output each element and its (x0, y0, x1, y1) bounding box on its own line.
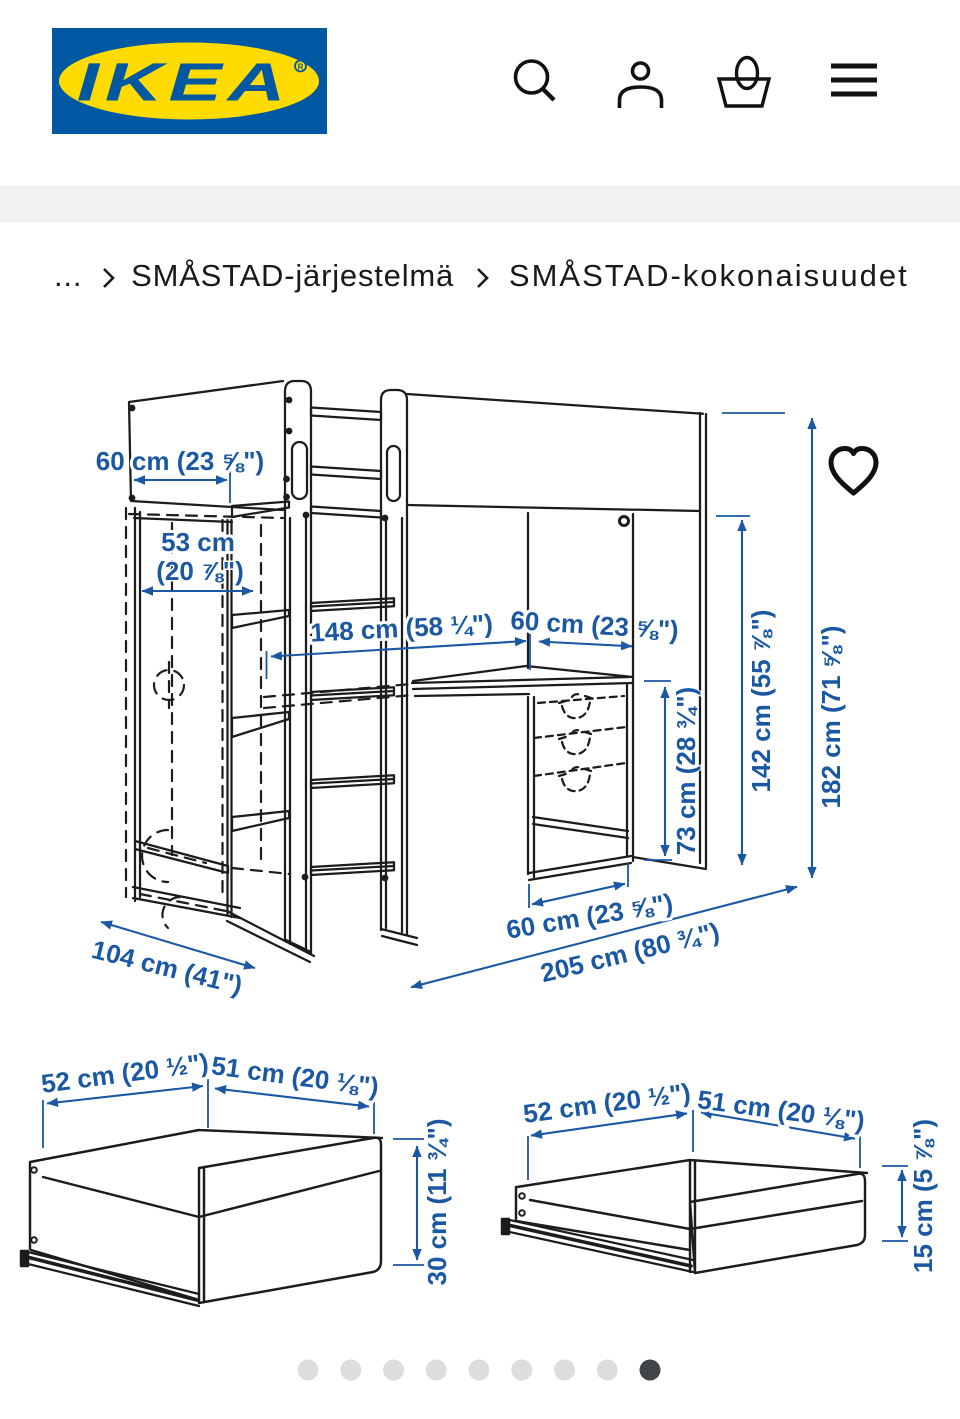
svg-text:52 cm (20 ½"): 52 cm (20 ½") (39, 1047, 210, 1099)
svg-text:30 cm (11 ¾"): 30 cm (11 ¾") (422, 1119, 452, 1286)
svg-text:142 cm (55 ⅞"): 142 cm (55 ⅞") (746, 610, 776, 793)
svg-text:73 cm (28 ¾"): 73 cm (28 ¾") (671, 687, 701, 855)
svg-text:51 cm (20 ⅛"): 51 cm (20 ⅛") (696, 1084, 867, 1136)
svg-text:52 cm (20 ½"): 52 cm (20 ½") (521, 1077, 692, 1129)
svg-text:(20 ⅞"): (20 ⅞") (156, 556, 243, 586)
svg-text:60 cm (23 ⅝"): 60 cm (23 ⅝") (96, 446, 264, 476)
svg-text:IKEA: IKEA (77, 52, 292, 112)
svg-text:104 cm (41"): 104 cm (41") (89, 934, 246, 1000)
svg-text:15 cm (5 ⅞"): 15 cm (5 ⅞") (908, 1119, 938, 1273)
svg-text:53 cm: 53 cm (161, 527, 235, 557)
svg-text:R: R (298, 63, 304, 72)
svg-text:182 cm (71 ⅝"): 182 cm (71 ⅝") (816, 626, 846, 809)
svg-text:51 cm (20 ⅛"): 51 cm (20 ⅛") (210, 1050, 381, 1102)
svg-text:148 cm (58 ¼"): 148 cm (58 ¼") (309, 608, 493, 648)
svg-text:60 cm (23 ⅝"): 60 cm (23 ⅝") (510, 605, 680, 645)
